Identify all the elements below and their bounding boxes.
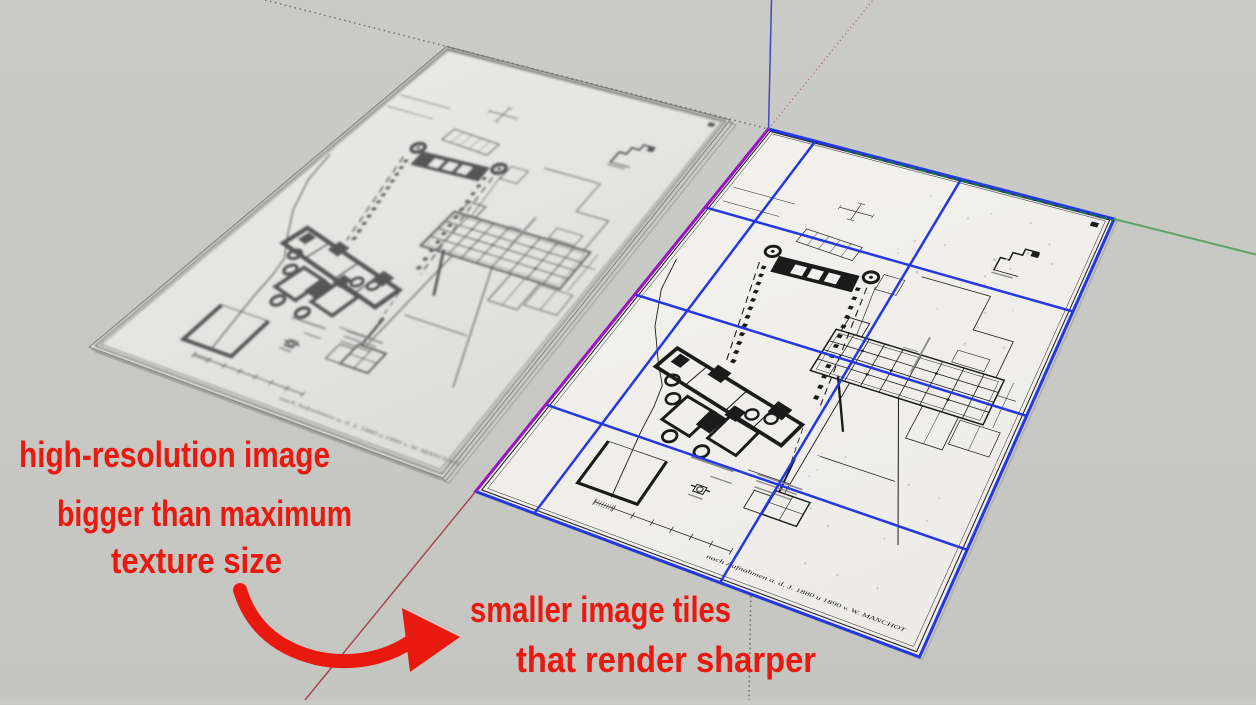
svg-text:that render sharper: that render sharper bbox=[516, 639, 816, 680]
svg-text:smaller image tiles: smaller image tiles bbox=[470, 589, 731, 630]
svg-text:texture size: texture size bbox=[111, 540, 282, 581]
svg-text:bigger than maximum: bigger than maximum bbox=[57, 493, 352, 534]
svg-text:high-resolution image: high-resolution image bbox=[19, 434, 330, 475]
